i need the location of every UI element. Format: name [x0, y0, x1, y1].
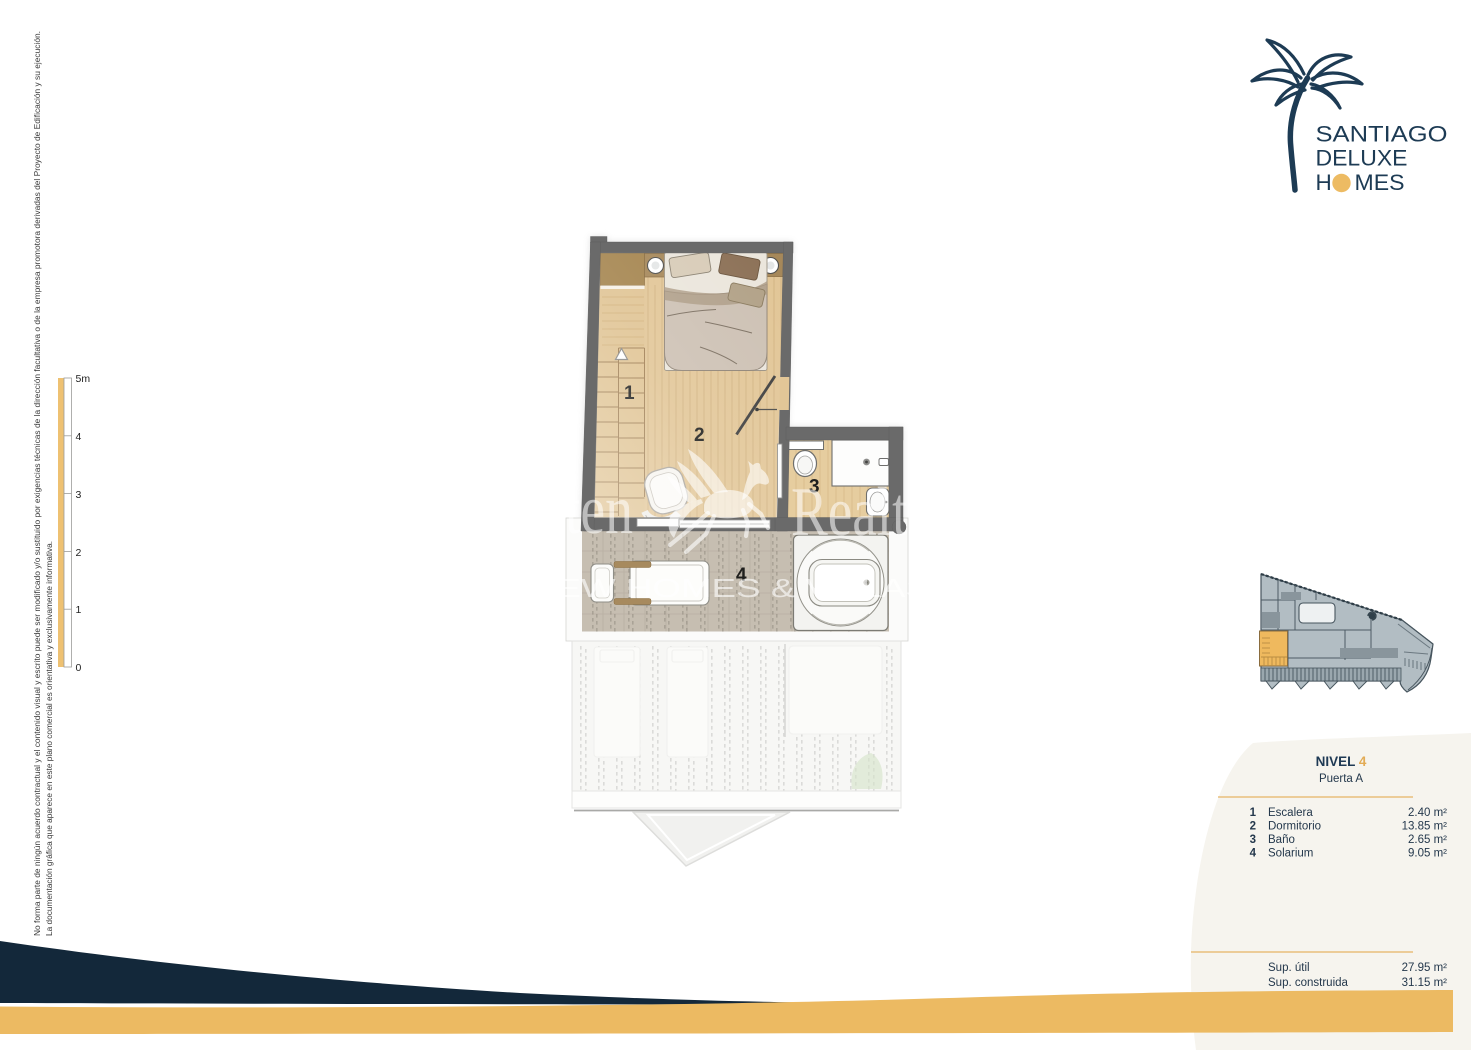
svg-text:Sup. construida: Sup. construida — [1268, 977, 1349, 989]
svg-text:Solarium: Solarium — [1268, 848, 1313, 860]
svg-text:La documentación gráfica que a: La documentación gráfica que aparece en … — [45, 541, 54, 936]
svg-text:H: H — [1316, 170, 1332, 195]
svg-text:Escalera: Escalera — [1268, 807, 1313, 819]
svg-text:MES: MES — [1355, 170, 1405, 195]
svg-text:Baño: Baño — [1268, 834, 1295, 846]
svg-text:4: 4 — [76, 431, 82, 443]
svg-text:31.15 m²: 31.15 m² — [1402, 977, 1448, 989]
svg-text:Sup. útil: Sup. útil — [1268, 962, 1310, 974]
svg-text:Dormitorio: Dormitorio — [1268, 821, 1321, 833]
svg-text:5m: 5m — [76, 373, 91, 385]
svg-text:0: 0 — [76, 662, 82, 674]
svg-text:NEW HOMES & VILLAS: NEW HOMES & VILLAS — [530, 573, 930, 603]
svg-text:3: 3 — [1250, 834, 1256, 846]
svg-text:3: 3 — [76, 489, 82, 501]
svg-text:9.05 m²: 9.05 m² — [1408, 848, 1447, 860]
svg-text:2: 2 — [1250, 821, 1256, 833]
svg-text:1: 1 — [1250, 807, 1257, 819]
svg-text:2.65 m²: 2.65 m² — [1408, 834, 1447, 846]
svg-text:NIVEL 4: NIVEL 4 — [1316, 754, 1367, 769]
svg-text:No forma parte de ningún acuer: No forma parte de ningún acuerdo contrac… — [33, 31, 42, 936]
svg-text:Realty: Realty — [791, 474, 935, 551]
svg-text:2: 2 — [76, 547, 82, 559]
svg-text:Puerta A: Puerta A — [1319, 773, 1363, 785]
svg-text:13.85 m²: 13.85 m² — [1402, 821, 1448, 833]
svg-text:DELUXE: DELUXE — [1316, 146, 1408, 171]
svg-text:27.95 m²: 27.95 m² — [1402, 962, 1448, 974]
svg-text:1: 1 — [76, 604, 82, 616]
svg-text:Austen: Austen — [475, 472, 633, 549]
svg-text:2.40 m²: 2.40 m² — [1408, 807, 1447, 819]
svg-text:SANTIAGO: SANTIAGO — [1316, 122, 1448, 147]
svg-text:4: 4 — [1250, 848, 1257, 860]
